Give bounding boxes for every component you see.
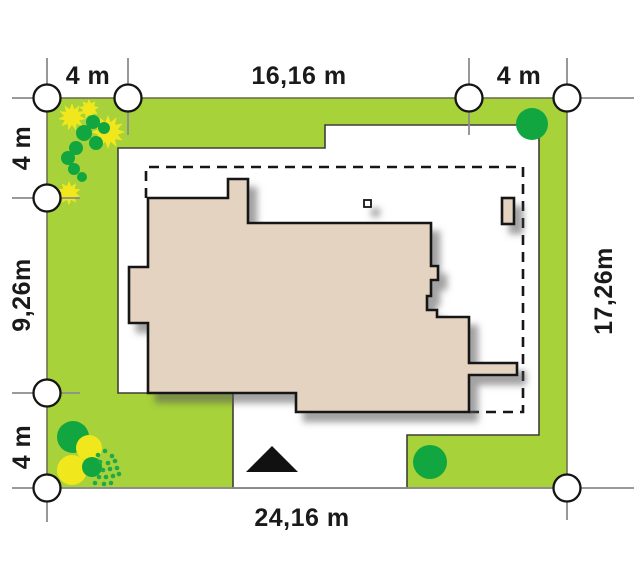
dimension-node: [34, 185, 61, 212]
dimension-node: [34, 380, 61, 407]
small-square-marker: [364, 200, 371, 207]
dimension-node: [554, 85, 581, 112]
dimension-node: [34, 85, 61, 112]
chimney: [502, 198, 514, 224]
dimension-node: [115, 85, 142, 112]
dimension-node: [34, 475, 61, 502]
dim-label-left-bottom: 4 m: [8, 425, 36, 470]
dimension-node: [456, 85, 483, 112]
dim-label-bottom-width: 24,16 m: [254, 504, 349, 532]
dim-label-top-right: 4 m: [497, 62, 542, 90]
tree-bottom-right: [413, 445, 447, 479]
tree-top-right: [516, 108, 548, 140]
dimension-node: [554, 475, 581, 502]
site-plan-svg: 4 m 16,16 m 4 m 4 m 9,26m 4 m 17,26m 24,…: [0, 0, 640, 583]
dim-label-left-height: 9,26m: [8, 258, 36, 331]
dim-label-top-left: 4 m: [66, 62, 111, 90]
dim-label-left-top: 4 m: [8, 126, 36, 171]
site-plan: 4 m 16,16 m 4 m 4 m 9,26m 4 m 17,26m 24,…: [0, 0, 640, 583]
dim-label-top-width: 16,16 m: [251, 62, 346, 90]
dim-label-right-height: 17,26m: [590, 247, 618, 335]
